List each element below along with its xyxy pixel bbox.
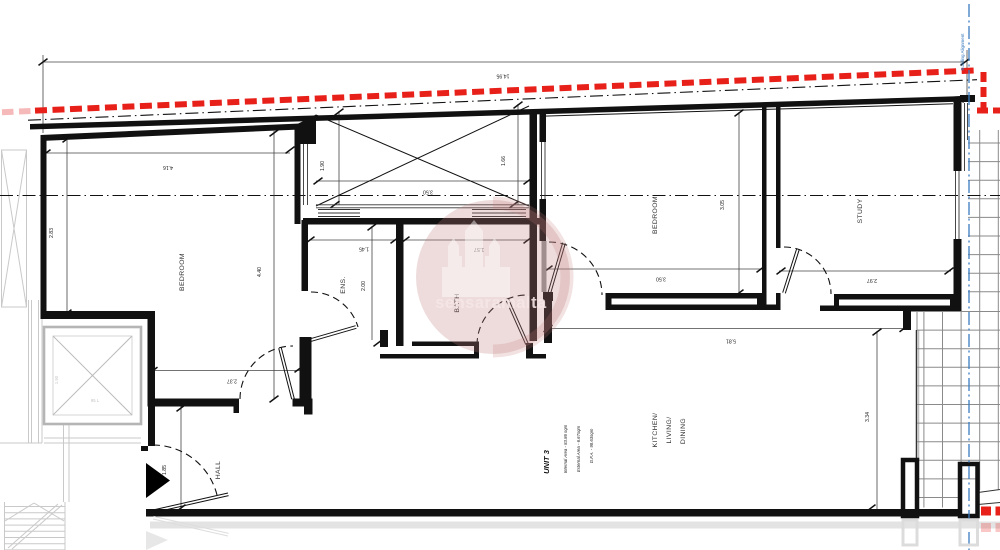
svg-text:STUDY: STUDY	[857, 198, 864, 223]
svg-text:2.83: 2.83	[49, 228, 55, 238]
svg-text:BEDROOM: BEDROOM	[179, 253, 186, 291]
svg-text:ENS.: ENS.	[340, 276, 347, 293]
svg-text:BEDROOM: BEDROOM	[652, 196, 659, 234]
svg-text:Internal Area - 83.86 sqm: Internal Area - 83.86 sqm	[563, 424, 568, 473]
svg-text:G.F.A. - 98.63sqm: G.F.A. - 98.63sqm	[589, 428, 594, 463]
svg-text:3.34: 3.34	[865, 412, 871, 422]
svg-text:1.85: 1.85	[162, 465, 168, 475]
svg-text:HALL: HALL	[215, 461, 222, 480]
svg-text:3.05: 3.05	[720, 200, 726, 210]
svg-text:3.50: 3.50	[423, 189, 433, 195]
svg-text:KITCHEN/: KITCHEN/	[652, 413, 659, 448]
svg-text:1.90: 1.90	[320, 161, 326, 171]
svg-text:1.66: 1.66	[501, 156, 507, 166]
svg-text:4.16: 4.16	[163, 164, 173, 170]
svg-text:95 L: 95 L	[91, 398, 100, 403]
svg-text:2.37: 2.37	[227, 378, 237, 384]
svg-text:14.95: 14.95	[496, 73, 509, 79]
svg-text:2.97: 2.97	[867, 277, 877, 283]
svg-text:1.90: 1.90	[54, 375, 59, 384]
svg-text:1.45: 1.45	[359, 246, 369, 252]
svg-text:External Area - 6.67sqm: External Area - 6.67sqm	[576, 426, 581, 473]
svg-text:4.40: 4.40	[257, 267, 263, 277]
svg-text:Building Alignment: Building Alignment	[960, 33, 965, 71]
svg-text:UNIT 3: UNIT 3	[542, 449, 551, 474]
svg-text:2.00: 2.00	[361, 281, 367, 291]
svg-text:3.50: 3.50	[656, 276, 666, 282]
svg-text:DINING: DINING	[680, 418, 687, 444]
svg-text:sensaramalta: sensaramalta	[435, 294, 547, 312]
svg-text:LIVING/: LIVING/	[666, 417, 673, 444]
svg-text:5.81: 5.81	[726, 338, 736, 344]
